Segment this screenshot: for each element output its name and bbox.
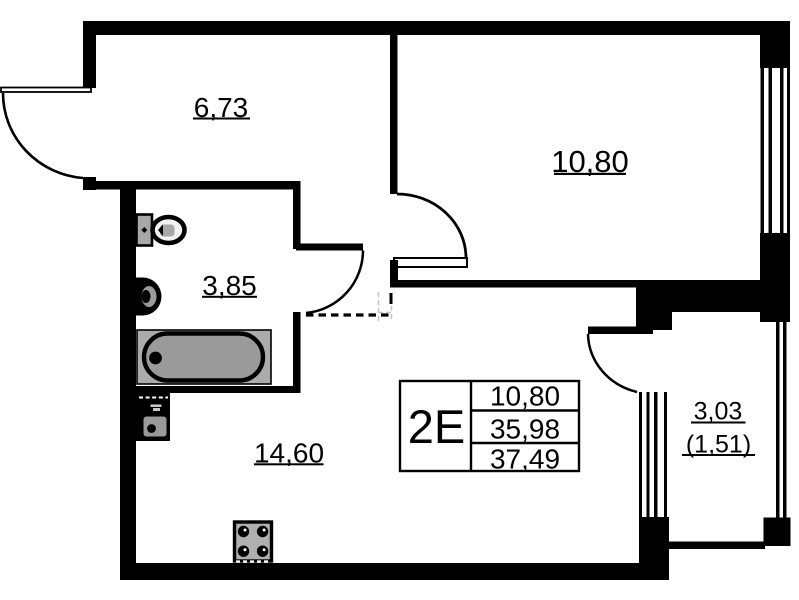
svg-text:35,98: 35,98 bbox=[490, 414, 560, 445]
svg-text:2E: 2E bbox=[408, 400, 466, 453]
svg-text:3,03: 3,03 bbox=[694, 398, 743, 426]
svg-text:37,49: 37,49 bbox=[490, 444, 560, 475]
svg-text:10,80: 10,80 bbox=[490, 381, 560, 412]
